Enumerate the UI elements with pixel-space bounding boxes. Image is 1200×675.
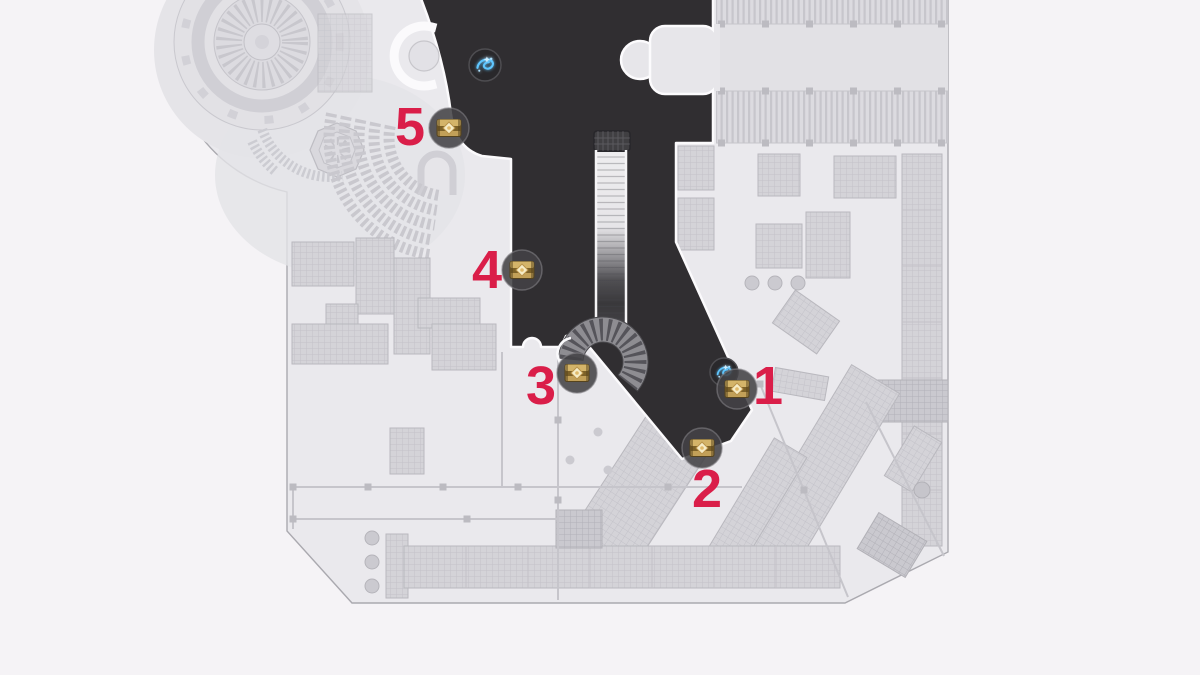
chest-number-label: 5 bbox=[395, 97, 425, 157]
chest-icon bbox=[565, 365, 589, 382]
staircase bbox=[594, 131, 630, 332]
chest-icon bbox=[690, 440, 714, 457]
game-map-screen: 1 2 3 4 5 bbox=[0, 0, 1200, 675]
chest-marker-4[interactable] bbox=[502, 250, 542, 290]
terrace-bands bbox=[716, 0, 948, 147]
chest-number-label: 2 bbox=[692, 459, 722, 519]
chest-icon bbox=[725, 381, 749, 398]
octagon-pavilion bbox=[310, 123, 364, 177]
game-map[interactable]: 1 2 3 4 5 bbox=[0, 0, 1200, 675]
chest-number-label: 3 bbox=[526, 356, 556, 416]
luminous-item-icon[interactable] bbox=[469, 49, 501, 81]
chest-marker-3[interactable] bbox=[557, 353, 597, 393]
chest-icon bbox=[510, 262, 534, 279]
chest-icon bbox=[437, 120, 461, 137]
chest-marker-5[interactable] bbox=[429, 108, 469, 148]
chest-number-label: 4 bbox=[472, 240, 502, 300]
chest-number-label: 1 bbox=[753, 356, 783, 416]
